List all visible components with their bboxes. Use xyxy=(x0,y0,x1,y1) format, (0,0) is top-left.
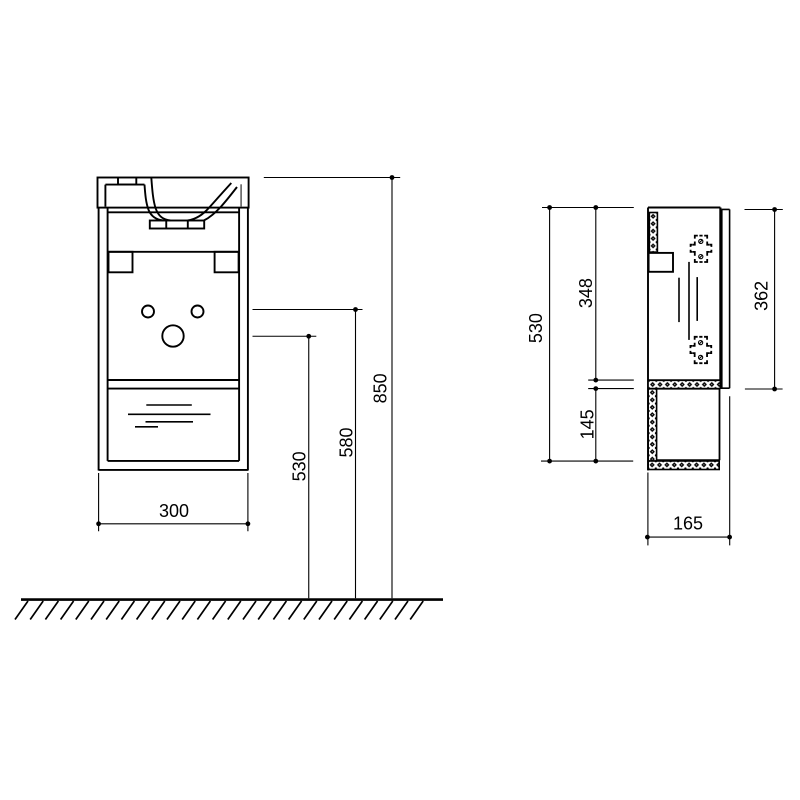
svg-text:530: 530 xyxy=(289,451,309,481)
svg-text:165: 165 xyxy=(673,514,703,534)
svg-text:530: 530 xyxy=(526,313,546,343)
svg-text:300: 300 xyxy=(159,501,189,521)
svg-text:362: 362 xyxy=(752,281,772,311)
svg-text:580: 580 xyxy=(337,427,357,457)
svg-text:850: 850 xyxy=(370,373,390,403)
svg-text:348: 348 xyxy=(576,278,596,308)
svg-text:145: 145 xyxy=(577,409,597,439)
